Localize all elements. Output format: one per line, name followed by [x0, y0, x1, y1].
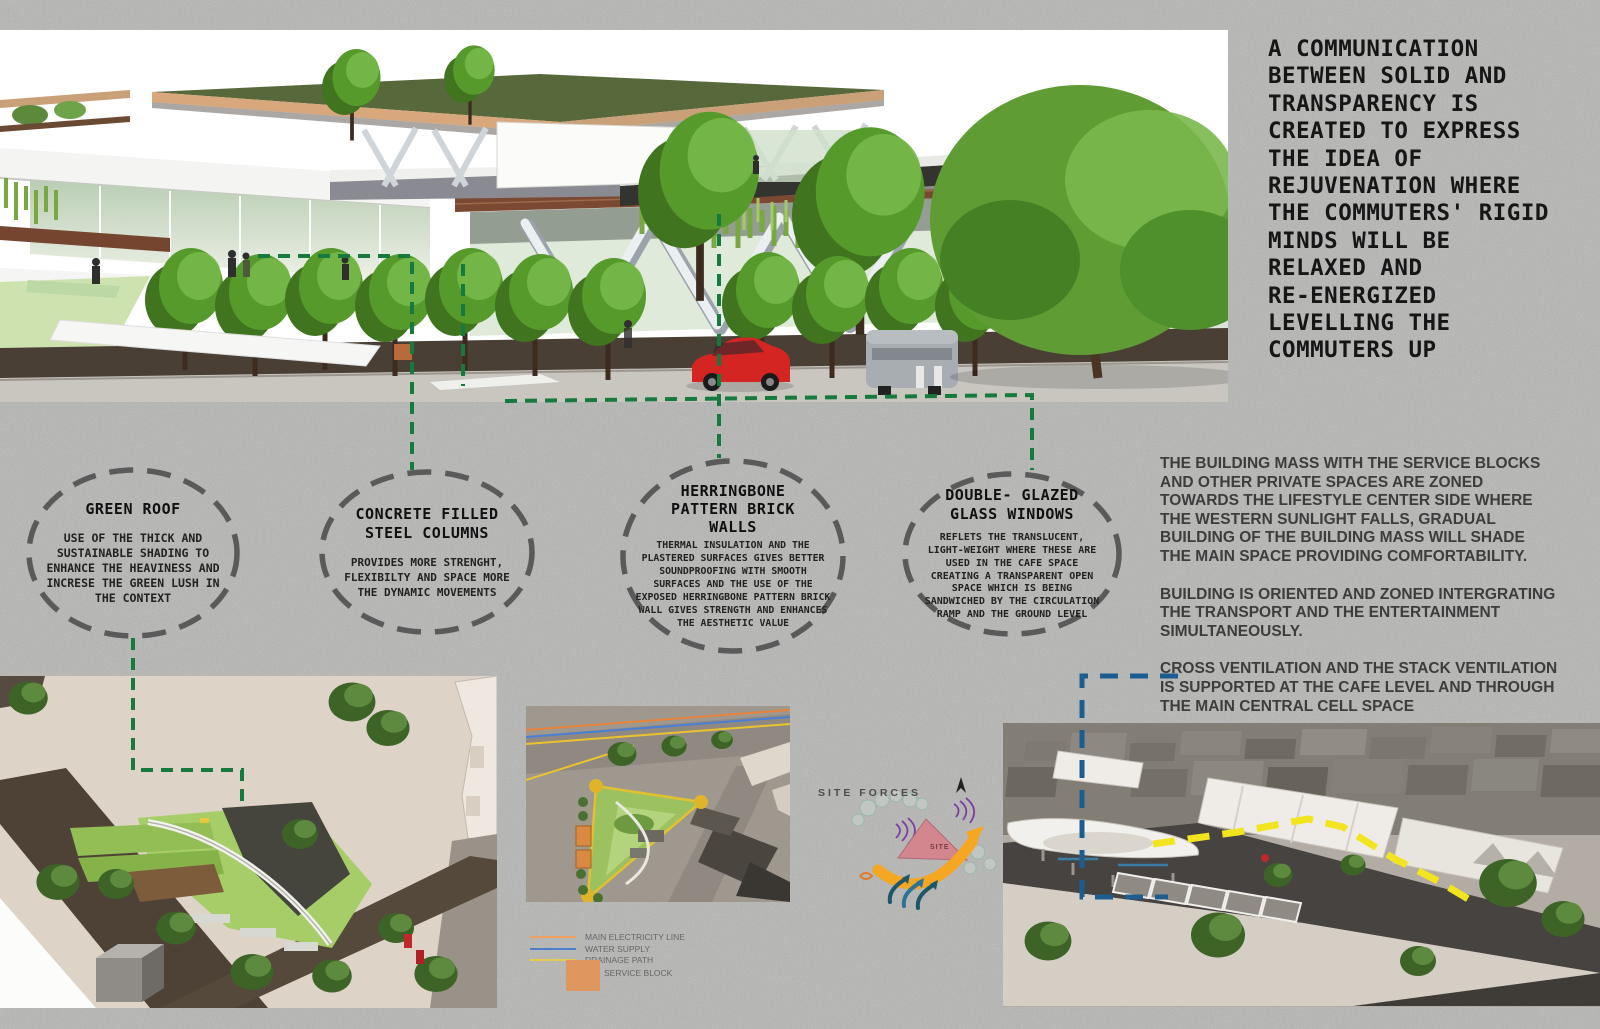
zoning-notes: THE BUILDING MASS WITH THE SERVICE BLOCK…: [1160, 455, 1560, 735]
callout-green-roof: GREEN ROOF USE OF THE THICK AND SUSTAINA…: [28, 470, 238, 636]
entry-scribble-icon: [860, 873, 872, 879]
kiosk-cube: [96, 944, 164, 1002]
site-forces-label: SITE FORCES: [818, 787, 921, 799]
zoning-paragraph: THE BUILDING MASS WITH THE SERVICE BLOCK…: [1160, 455, 1560, 567]
legend-label: WATER SUPPLY: [585, 944, 650, 954]
callout-steel-columns: CONCRETE FILLED STEEL COLUMNS PROVIDES M…: [322, 472, 532, 632]
planter-pot: [394, 344, 412, 360]
electricity-line-swatch: [530, 936, 576, 938]
city-context-render: [1003, 723, 1600, 1007]
legend-item-water: WATER SUPPLY: [530, 944, 650, 954]
hero-building-render: [0, 30, 1228, 402]
design-statement: A COMMUNICATION BETWEEN SOLID AND TRANSP…: [1268, 36, 1570, 365]
callout-brick-walls: HERRINGBONE PATTERN BRICK WALLS THERMAL …: [623, 461, 843, 651]
service-block-swatch: [566, 960, 600, 991]
green-connector-glass: [505, 395, 1032, 470]
callout-body: THERMAL INSULATION AND THE PLASTERED SUR…: [635, 539, 831, 630]
orientation-paragraph: BUILDING IS ORIENTED AND ZONED INTERGRAT…: [1160, 586, 1560, 642]
presentation-board: A COMMUNICATION BETWEEN SOLID AND TRANSP…: [0, 0, 1600, 1029]
site-plan-render: [526, 706, 790, 902]
water-line-swatch: [530, 948, 576, 950]
legend-label: MAIN ELECTRICITY LINE: [585, 932, 685, 942]
parked-car: [404, 934, 412, 948]
parked-car: [416, 950, 424, 964]
legend-label: SERVICE BLOCK: [604, 968, 672, 978]
site-triangle-label: SITE: [930, 844, 950, 851]
callout-title: DOUBLE- GLAZED GLASS WINDOWS: [917, 486, 1107, 524]
callout-body: USE OF THE THICK AND SUSTAINABLE SHADING…: [42, 531, 224, 606]
ventilation-paragraph: CROSS VENTILATION AND THE STACK VENTILAT…: [1160, 660, 1560, 716]
callout-title: GREEN ROOF: [85, 500, 180, 519]
callout-body: REFLETS THE TRANSLUCENT, LIGHT-WEIGHT WH…: [921, 532, 1103, 622]
callout-body: PROVIDES MORE STRENGHT, FLEXIBILTY AND S…: [333, 555, 521, 600]
site-forces-diagram: [850, 790, 1000, 915]
legend-item-electricity: MAIN ELECTRICITY LINE: [530, 932, 685, 942]
callout-glass-windows: DOUBLE- GLAZED GLASS WINDOWS REFLETS THE…: [905, 474, 1119, 634]
aerial-green-roof-render: [0, 676, 497, 1008]
callout-title: HERRINGBONE PATTERN BRICK WALLS: [652, 482, 814, 536]
callout-title: CONCRETE FILLED STEEL COLUMNS: [341, 505, 513, 543]
north-arrow-icon: [952, 775, 970, 799]
grey-bus: [866, 330, 958, 395]
